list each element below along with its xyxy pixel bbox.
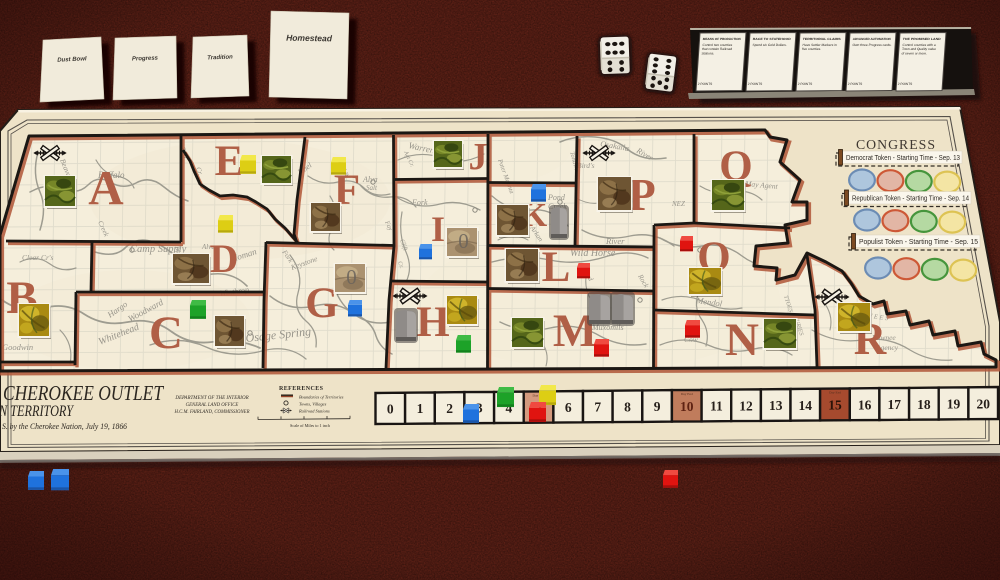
svg-text:THE PROMISED LAND: THE PROMISED LAND xyxy=(903,37,942,41)
svg-text:2 POINTS: 2 POINTS xyxy=(847,82,862,86)
svg-text:Clear Cr's: Clear Cr's xyxy=(22,253,53,262)
svg-text:11: 11 xyxy=(710,399,723,414)
svg-text:MEANS OF PRODUCTION: MEANS OF PRODUCTION xyxy=(703,37,742,41)
svg-text:14: 14 xyxy=(799,398,813,413)
svg-text:9: 9 xyxy=(654,399,661,414)
svg-text:18: 18 xyxy=(917,397,931,412)
svg-text:Pond: Pond xyxy=(547,193,566,202)
svg-text:ADVANCED AUTOMATION: ADVANCED AUTOMATION xyxy=(853,37,892,41)
svg-text:D: D xyxy=(210,236,239,281)
svg-text:TERRITORIAL CLAIMS: TERRITORIAL CLAIMS xyxy=(803,37,841,41)
svg-text:Fork: Fork xyxy=(411,198,428,207)
svg-text:I: I xyxy=(431,209,445,249)
svg-text:Republican Token - Starting Ti: Republican Token - Starting Time - Sep. … xyxy=(852,196,969,203)
svg-text:H.C.M. FAIRLAND, COMMISSIONER: H.C.M. FAIRLAND, COMMISSIONER xyxy=(173,410,249,415)
svg-text:Day End: Day End xyxy=(829,391,841,395)
svg-text:2: 2 xyxy=(446,401,453,416)
svg-text:of seven or more.: of seven or more. xyxy=(901,51,927,55)
svg-text:0: 0 xyxy=(387,402,394,417)
svg-text:RACE TO STATEHOOD: RACE TO STATEHOOD xyxy=(753,37,792,41)
svg-text:Homestead: Homestead xyxy=(286,33,333,44)
svg-text:16: 16 xyxy=(858,397,872,412)
svg-text:Tradition: Tradition xyxy=(207,55,233,62)
svg-text:7: 7 xyxy=(594,400,601,415)
svg-text:N TERRITORY: N TERRITORY xyxy=(0,403,74,420)
svg-text:1: 1 xyxy=(417,401,424,416)
svg-text:GENERAL LAND OFFICE: GENERAL LAND OFFICE xyxy=(186,403,239,408)
svg-text:2 POINTS: 2 POINTS xyxy=(697,82,712,86)
svg-text:E: E xyxy=(215,138,244,185)
svg-text:S. by the Cherokee Nation, Jul: S. by the Cherokee Nation, July 19, 1866 xyxy=(2,421,128,431)
svg-text:13: 13 xyxy=(769,398,783,413)
svg-text:6: 6 xyxy=(565,400,572,415)
svg-text:Scale of Miles to 1 inch: Scale of Miles to 1 inch xyxy=(290,423,331,428)
svg-text:NEZ: NEZ xyxy=(671,200,685,208)
svg-text:A: A xyxy=(88,160,124,215)
svg-text:Salt: Salt xyxy=(366,184,378,192)
svg-text:Spend six Gold Dollars.: Spend six Gold Dollars. xyxy=(752,43,787,47)
svg-text:0: 0 xyxy=(346,265,357,289)
svg-text:five counties.: five counties. xyxy=(802,47,822,51)
svg-text:2 POINTS: 2 POINTS xyxy=(797,82,812,86)
svg-text:DEPARTMENT OF THE INTERIOR: DEPARTMENT OF THE INTERIOR xyxy=(174,396,248,401)
svg-text:L: L xyxy=(542,244,571,291)
svg-text:CONGRESS: CONGRESS xyxy=(856,137,936,152)
svg-text:10: 10 xyxy=(680,399,694,414)
svg-text:15: 15 xyxy=(828,398,842,413)
svg-text:N: N xyxy=(725,314,759,366)
svg-text:17: 17 xyxy=(887,397,901,412)
svg-text:Railroad Stations: Railroad Stations xyxy=(298,409,330,414)
svg-text:Own three Progress cards.: Own three Progress cards. xyxy=(852,43,892,47)
svg-text:19: 19 xyxy=(947,397,961,412)
svg-text:0: 0 xyxy=(458,229,469,253)
svg-text:Goodwin: Goodwin xyxy=(2,342,33,352)
svg-text:Alva: Alva xyxy=(362,175,378,184)
svg-text:C: C xyxy=(149,307,183,359)
svg-text:Democrat Token - Starting Time: Democrat Token - Starting Time - Sep. 13 xyxy=(846,155,960,162)
svg-text:2 POINTS: 2 POINTS xyxy=(747,82,762,86)
svg-text:Progress: Progress xyxy=(132,56,159,63)
svg-text:River: River xyxy=(605,236,625,246)
svg-text:8: 8 xyxy=(624,399,631,414)
svg-text:Stations.: Stations. xyxy=(701,51,714,55)
svg-text:2 POINTS: 2 POINTS xyxy=(897,82,912,86)
svg-text:20: 20 xyxy=(976,396,990,411)
svg-text:Populist Token - Starting Time: Populist Token - Starting Time - Sep. 15 xyxy=(859,239,978,246)
svg-text:REFERENCES: REFERENCES xyxy=(279,386,324,392)
svg-text:H: H xyxy=(416,299,449,346)
svg-text:12: 12 xyxy=(739,398,753,413)
svg-text:J: J xyxy=(469,136,488,178)
svg-text:Boundaries of Territories: Boundaries of Territories xyxy=(299,395,344,400)
svg-text:E CHEROKEE OUTLET: E CHEROKEE OUTLET xyxy=(0,381,164,405)
svg-text:Day End: Day End xyxy=(681,392,693,396)
